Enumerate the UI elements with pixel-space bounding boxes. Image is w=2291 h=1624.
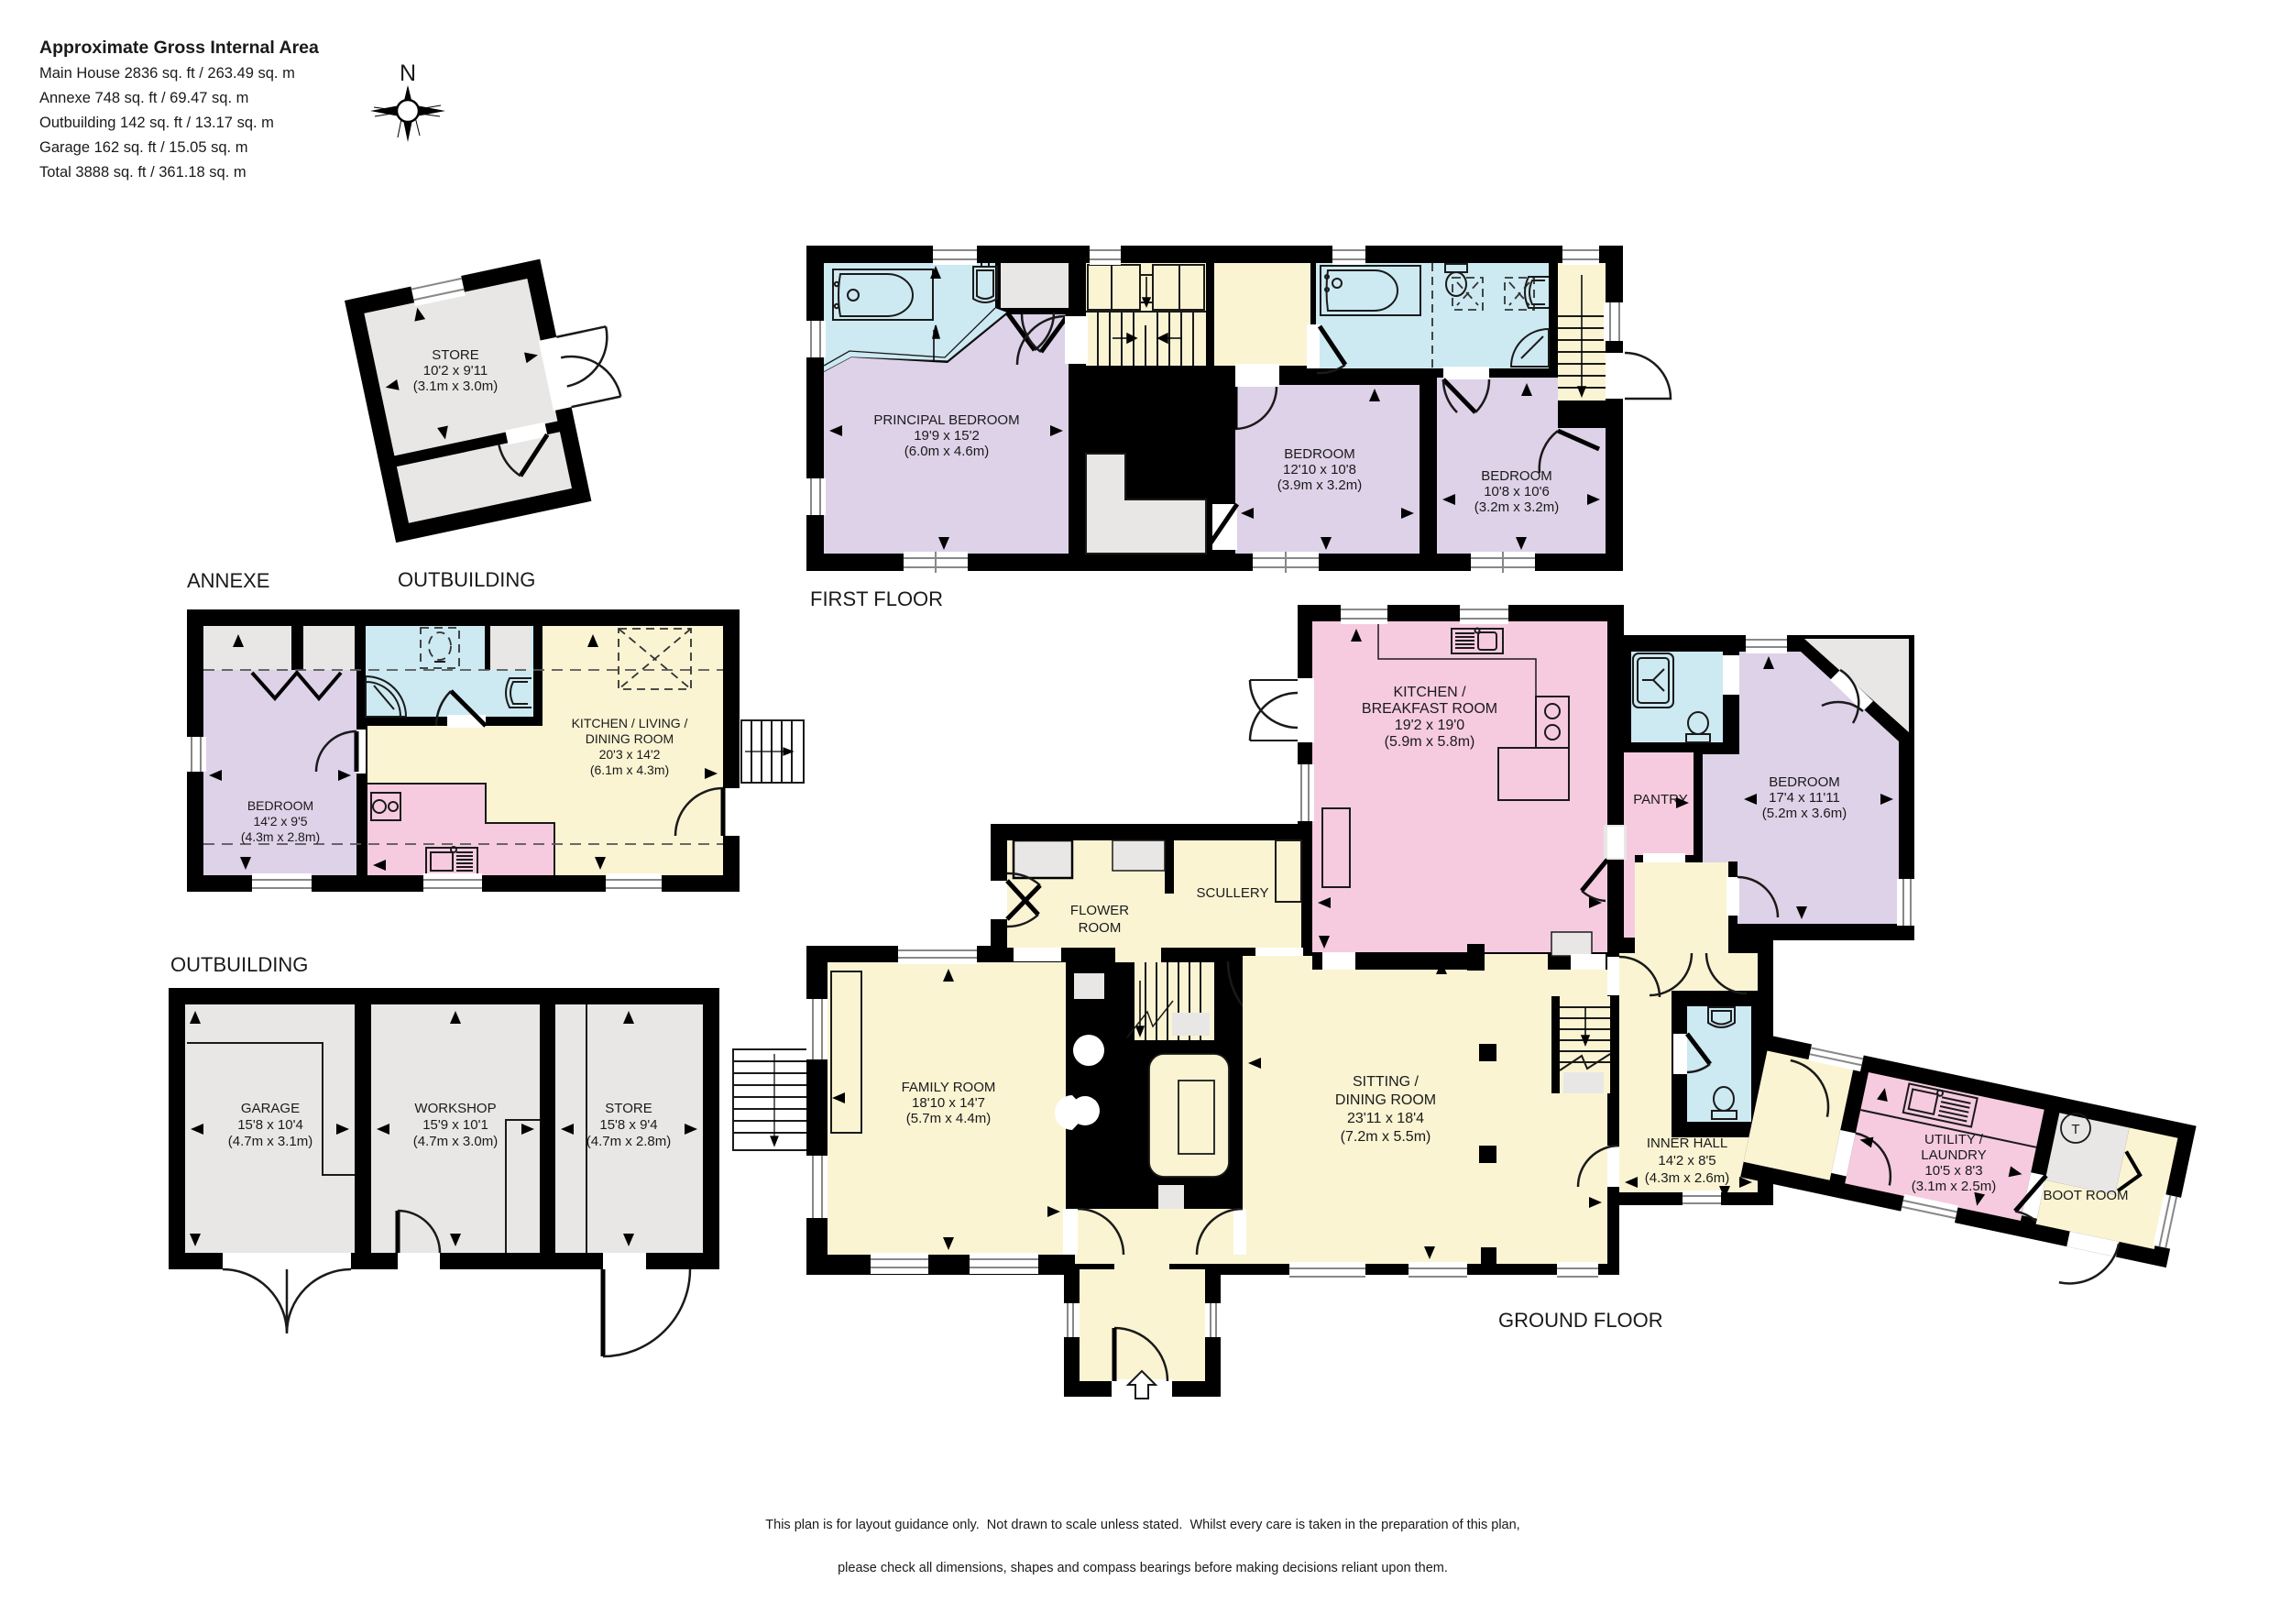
svg-text:UTILITY /: UTILITY / [1924, 1132, 1984, 1147]
svg-text:FAMILY ROOM: FAMILY ROOM [902, 1080, 996, 1095]
svg-text:17'4 x 11'11: 17'4 x 11'11 [1769, 790, 1840, 806]
svg-text:20'3 x 14'2: 20'3 x 14'2 [599, 747, 661, 762]
svg-text:SITTING /: SITTING / [1353, 1074, 1420, 1090]
svg-text:Total 3888 sq. ft / 361.18 sq.: Total 3888 sq. ft / 361.18 sq. m [39, 164, 247, 181]
svg-text:DINING ROOM: DINING ROOM [586, 731, 674, 746]
svg-text:(5.7m x 4.4m): (5.7m x 4.4m) [906, 1111, 992, 1126]
svg-text:10'2 x 9'11: 10'2 x 9'11 [423, 363, 488, 379]
svg-text:18'10 x 14'7: 18'10 x 14'7 [912, 1095, 985, 1111]
svg-text:PRINCIPAL BEDROOM: PRINCIPAL BEDROOM [873, 412, 1019, 428]
svg-text:FLOWER: FLOWER [1070, 903, 1129, 918]
svg-text:OUTBUILDING: OUTBUILDING [398, 568, 535, 591]
svg-text:10'5 x 8'3: 10'5 x 8'3 [1924, 1163, 1982, 1179]
svg-text:(5.9m x 5.8m): (5.9m x 5.8m) [1385, 734, 1475, 750]
svg-text:SCULLERY: SCULLERY [1197, 885, 1269, 901]
svg-text:BEDROOM: BEDROOM [1481, 468, 1552, 484]
svg-text:(4.7m x 3.0m): (4.7m x 3.0m) [413, 1134, 499, 1149]
svg-text:(6.0m x 4.6m): (6.0m x 4.6m) [904, 444, 990, 459]
svg-text:LAUNDRY: LAUNDRY [1921, 1147, 1986, 1163]
svg-text:Main House 2836 sq. ft / 263.4: Main House 2836 sq. ft / 263.49 sq. m [39, 65, 295, 82]
svg-text:STORE: STORE [432, 347, 478, 363]
svg-text:BEDROOM: BEDROOM [1284, 446, 1355, 462]
svg-text:T: T [2071, 1122, 2079, 1137]
svg-text:(5.2m x 3.6m): (5.2m x 3.6m) [1762, 806, 1847, 821]
svg-text:23'11 x 18'4: 23'11 x 18'4 [1347, 1111, 1424, 1126]
svg-text:(4.3m x 2.6m): (4.3m x 2.6m) [1645, 1170, 1730, 1186]
svg-text:KITCHEN /: KITCHEN / [1393, 685, 1466, 700]
svg-text:WORKSHOP: WORKSHOP [414, 1101, 496, 1116]
svg-text:(3.1m x 3.0m): (3.1m x 3.0m) [413, 379, 499, 394]
svg-text:15'8 x 10'4: 15'8 x 10'4 [237, 1117, 303, 1133]
svg-text:OUTBUILDING: OUTBUILDING [170, 953, 308, 976]
svg-text:DINING ROOM: DINING ROOM [1335, 1092, 1436, 1108]
svg-text:N: N [400, 60, 416, 86]
svg-text:(3.9m x 3.2m): (3.9m x 3.2m) [1277, 477, 1363, 493]
svg-text:(4.7m x 3.1m): (4.7m x 3.1m) [228, 1134, 313, 1149]
svg-text:BREAKFAST ROOM: BREAKFAST ROOM [1362, 701, 1497, 717]
svg-text:14'2 x 8'5: 14'2 x 8'5 [1658, 1153, 1716, 1169]
svg-text:BOOT ROOM: BOOT ROOM [2043, 1188, 2128, 1203]
svg-text:please check all dimensions, s: please check all dimensions, shapes and … [838, 1561, 1448, 1575]
svg-text:FIRST FLOOR: FIRST FLOOR [810, 587, 943, 610]
svg-text:14'2 x 9'5: 14'2 x 9'5 [253, 814, 307, 828]
svg-text:19'2 x 19'0: 19'2 x 19'0 [1395, 718, 1464, 733]
svg-text:(7.2m x 5.5m): (7.2m x 5.5m) [1341, 1129, 1431, 1145]
svg-text:(3.2m x 3.2m): (3.2m x 3.2m) [1474, 499, 1560, 515]
svg-text:BEDROOM: BEDROOM [1769, 774, 1840, 790]
svg-text:BEDROOM: BEDROOM [247, 798, 313, 813]
svg-text:GROUND FLOOR: GROUND FLOOR [1498, 1309, 1663, 1332]
svg-text:12'10 x 10'8: 12'10 x 10'8 [1283, 462, 1356, 477]
svg-text:Garage 162 sq. ft / 15.05 sq.: Garage 162 sq. ft / 15.05 sq. m [39, 139, 247, 156]
svg-text:KITCHEN / LIVING /: KITCHEN / LIVING / [572, 716, 688, 730]
svg-text:19'9 x 15'2: 19'9 x 15'2 [914, 428, 980, 444]
svg-text:Outbuilding 142 sq. ft / 13.17: Outbuilding 142 sq. ft / 13.17 sq. m [39, 115, 274, 131]
svg-text:ROOM: ROOM [1079, 920, 1122, 936]
svg-text:(3.1m x 2.5m): (3.1m x 2.5m) [1912, 1179, 1997, 1194]
svg-text:(6.1m x 4.3m): (6.1m x 4.3m) [590, 763, 669, 777]
svg-text:ANNEXE: ANNEXE [187, 569, 269, 592]
svg-text:GARAGE: GARAGE [241, 1101, 300, 1116]
svg-text:Annexe 748 sq. ft / 69.47 sq.: Annexe 748 sq. ft / 69.47 sq. m [39, 90, 248, 106]
svg-text:(4.3m x 2.8m): (4.3m x 2.8m) [241, 829, 320, 844]
svg-text:(4.7m x 2.8m): (4.7m x 2.8m) [586, 1134, 672, 1149]
svg-text:15'9 x 10'1: 15'9 x 10'1 [422, 1117, 488, 1133]
svg-text:10'8 x 10'6: 10'8 x 10'6 [1484, 484, 1550, 499]
svg-text:STORE: STORE [605, 1101, 652, 1116]
svg-text:15'8 x 9'4: 15'8 x 9'4 [599, 1117, 657, 1133]
svg-text:INNER HALL: INNER HALL [1647, 1136, 1727, 1151]
svg-text:Approximate Gross Internal Are: Approximate Gross Internal Area [39, 38, 319, 58]
svg-text:This plan is for layout guidan: This plan is for layout guidance only. N… [765, 1518, 1519, 1532]
